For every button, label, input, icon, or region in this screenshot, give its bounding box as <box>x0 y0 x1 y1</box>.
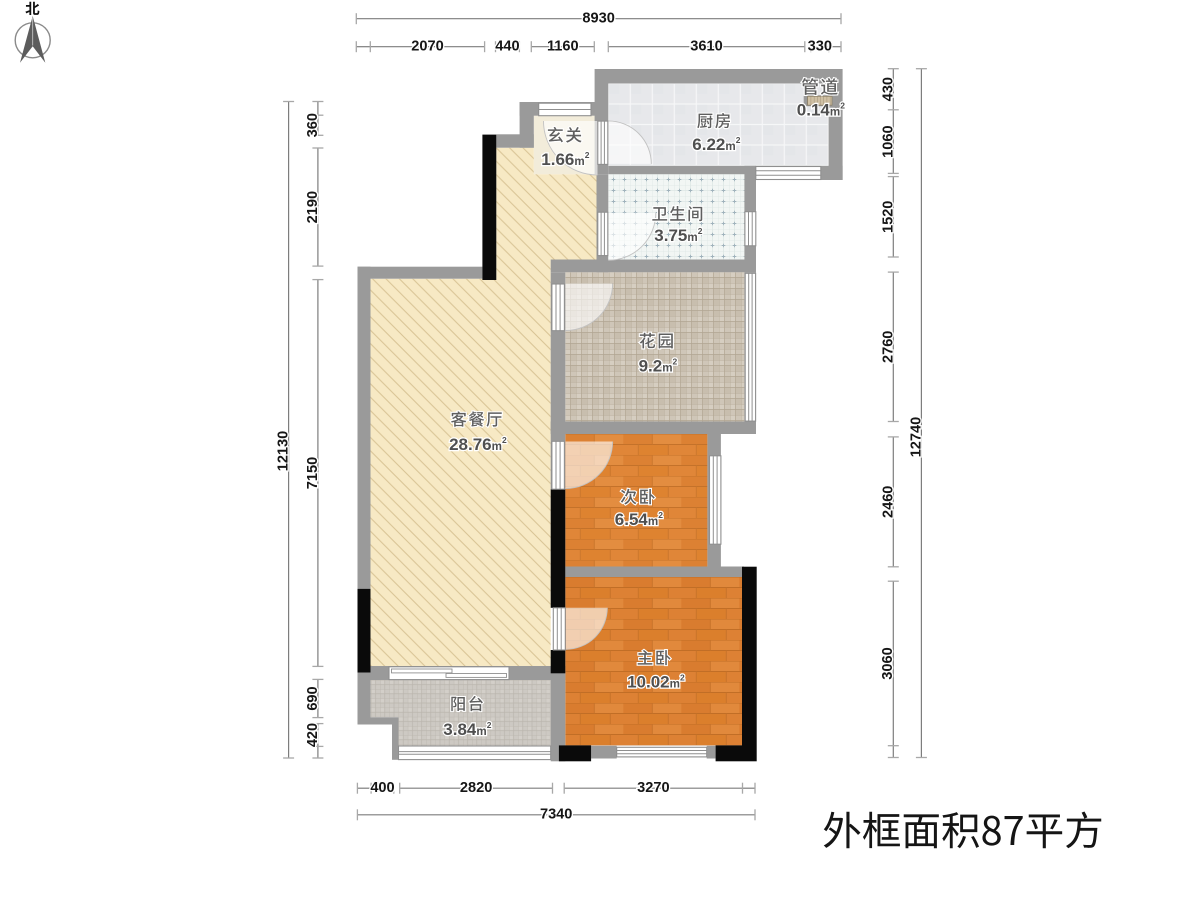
svg-text:3060: 3060 <box>880 647 896 679</box>
svg-text:690: 690 <box>305 686 321 710</box>
svg-text:2460: 2460 <box>880 486 896 518</box>
svg-text:3610: 3610 <box>690 38 722 54</box>
svg-text:7150: 7150 <box>305 457 321 489</box>
svg-text:7340: 7340 <box>540 807 572 823</box>
svg-text:400: 400 <box>370 780 394 796</box>
svg-text:9.2m2: 9.2m2 <box>639 356 678 375</box>
svg-text:2190: 2190 <box>305 191 321 223</box>
svg-text:420: 420 <box>305 723 321 747</box>
svg-text:2070: 2070 <box>411 38 443 54</box>
svg-text:440: 440 <box>495 38 519 54</box>
svg-text:3270: 3270 <box>637 780 669 796</box>
svg-text:12740: 12740 <box>908 417 924 458</box>
svg-text:360: 360 <box>305 113 321 137</box>
svg-text:2820: 2820 <box>460 780 492 796</box>
svg-text:330: 330 <box>808 38 832 54</box>
svg-text:1520: 1520 <box>880 201 896 233</box>
svg-text:2760: 2760 <box>880 331 896 363</box>
svg-text:1060: 1060 <box>880 125 896 157</box>
svg-text:12130: 12130 <box>276 431 292 472</box>
svg-text:1160: 1160 <box>547 38 579 54</box>
svg-text:430: 430 <box>880 77 896 101</box>
svg-text:8930: 8930 <box>582 10 614 26</box>
